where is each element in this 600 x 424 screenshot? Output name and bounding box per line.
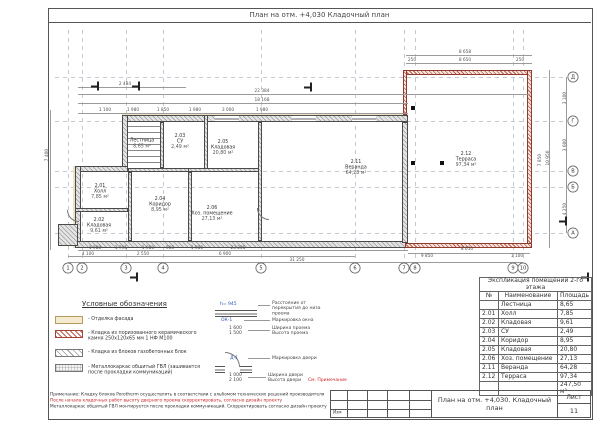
section-mark: [91, 82, 99, 91]
door-height: 2 100: [229, 377, 242, 382]
dimension-value: 1 980: [89, 245, 101, 250]
dimension-value: 2 484: [119, 81, 131, 86]
dimension-value: 4 250: [562, 203, 567, 215]
page-title: План на отм. +4,030 Кладочный план: [250, 11, 390, 19]
section-mark: [304, 83, 312, 92]
dimension-value: 4 100: [82, 251, 94, 256]
axis-bubble: 6: [349, 262, 360, 273]
dimension-value: 6 900: [219, 251, 231, 256]
legend-item-label: - Отделка фасада: [88, 316, 210, 322]
legend-title: Условные обозначения: [82, 300, 167, 308]
explication-title: Экспликация помещений 2-го этажа: [480, 278, 592, 292]
dimension-value: 2 550: [137, 251, 149, 256]
dimension-value: 1 850: [157, 107, 169, 112]
window-sill-height: h= 945: [220, 301, 237, 306]
dimension-value: 1 795: [115, 245, 127, 250]
dimension-value: 1 980: [142, 245, 154, 250]
column-mark: [411, 106, 415, 110]
window-symbol: [352, 115, 376, 122]
dimension-value: 23 205: [230, 245, 245, 250]
axis-bubble: Г: [567, 115, 578, 126]
drawing-sheet: План на отм. +4,030 Кладочный план: [0, 0, 600, 424]
dimension-value: 7 400: [44, 149, 49, 161]
axis-bubble: 2: [76, 262, 87, 273]
legend-item: - Металлокаркас обшитый ГВЛ (зашивается …: [55, 364, 240, 378]
note-line-3: Металлокаркас обшитый ГВЛ монтируется по…: [50, 404, 259, 409]
window-mark: ОК-1: [221, 317, 232, 322]
title-block-sheet: Лист 11: [557, 391, 590, 417]
axis-bubble: 7: [398, 262, 409, 273]
dimension-value: 1 980: [256, 107, 268, 112]
explication-header-row: № Наименование Площадь: [480, 292, 592, 301]
explication-row: 2.04Коридор8,95: [480, 337, 592, 346]
window-height: 1 500: [229, 330, 242, 335]
explication-table: Экспликация помещений 2-го этажа № Наиме…: [479, 277, 592, 396]
legend-item-label: - Кладка из блоков газобетонных блок: [88, 349, 210, 355]
axis-bubble: 4: [157, 262, 168, 273]
door-mark-label: Маркировка двери: [272, 355, 317, 360]
axis-bubble: А: [567, 227, 578, 238]
explication-row: 2.02Кладовая9,61: [480, 319, 592, 328]
dimension-value: 10 950: [545, 150, 550, 165]
dimension-value: 7 850: [537, 154, 542, 166]
sheet-number: 11: [558, 404, 590, 417]
dimension-value: 1 100: [511, 253, 523, 258]
explication-row: 2.05Кладовая20,80: [480, 346, 592, 355]
dimension-value: 3 600: [562, 139, 567, 151]
room-label: 2.02 Кладовая 9,61 м²: [87, 218, 111, 235]
dimension-value: 8 650: [461, 246, 473, 251]
izm-label: Изм: [333, 410, 342, 415]
axis-bubble: 1: [62, 262, 73, 273]
room-label: 2.12 Терраса 97,34 м²: [456, 152, 477, 169]
dimension-value: 250: [516, 57, 524, 62]
door-mark: Д-1: [230, 355, 238, 360]
sheet-label: Лист: [558, 391, 590, 404]
explication-rows: Лестница8,65 2.01Холл7,85 2.02Кладовая9,…: [480, 301, 592, 382]
legend-swatch: [55, 316, 83, 324]
legend-swatch: [55, 364, 83, 372]
dimension-value: 9 850: [421, 253, 433, 258]
legend-swatch: [55, 349, 83, 357]
title-block-revision-grid: Изм: [331, 391, 432, 417]
col-name: Наименование: [499, 292, 558, 301]
col-number: №: [480, 292, 499, 301]
column-mark: [411, 161, 415, 165]
legend-item: - Кладка из блоков газобетонных блок: [55, 349, 240, 357]
dimension-value: 1 980: [127, 107, 139, 112]
axis-bubble: 5: [255, 262, 266, 273]
title-block-doc-title: План на отм. +4,030. Кладочный план: [432, 391, 557, 417]
legend-item: - Кладка из поризованного керамического …: [55, 330, 240, 344]
note-line-2: После начала кладочных работ высоту двер…: [50, 398, 259, 403]
door-height-label: Высота двери: [268, 377, 301, 382]
dimension-value: 22 384: [254, 88, 269, 93]
dimension-value: 8 658: [459, 49, 471, 54]
room-label: 2.03 СУ 2,49 м²: [171, 134, 189, 151]
axis-bubble: В: [567, 165, 578, 176]
dimension-value: 3 000: [222, 107, 234, 112]
room-label: 2.01 Холл 7,85 м²: [91, 184, 109, 201]
window-mark-label: Маркировка окна: [272, 317, 313, 322]
explication-row: 2.11Веранда64,28: [480, 364, 592, 373]
sheet-top-title: План на отм. +4,030 Кладочный план: [48, 8, 591, 23]
section-mark: [130, 273, 138, 282]
room-label: 2.05 Кладовая 20,80 м²: [211, 140, 235, 157]
dimension-value: 1 980: [191, 245, 203, 250]
explication-row: 2.01Холл7,85: [480, 310, 592, 319]
dimension-value: 1 100: [99, 107, 111, 112]
dimension-value: 31 250: [289, 257, 304, 262]
window-height-label: Высота проема: [272, 330, 308, 335]
legend-swatch: [55, 330, 83, 338]
dimension-value: 900: [166, 245, 174, 250]
legend-item: - Отделка фасада: [55, 316, 240, 324]
dimension-value: 18 168: [254, 97, 269, 102]
col-area: Площадь: [557, 292, 591, 301]
axis-bubble: Д: [567, 71, 578, 82]
note-line-1: Примечание: Кладку блоков Porotherm осущ…: [50, 392, 259, 397]
room-label: 2.04 Коридор 8,95 м²: [149, 197, 171, 214]
section-mark: [559, 217, 567, 226]
axis-bubble: 10: [517, 262, 528, 273]
dimension-value: 1 980: [189, 107, 201, 112]
room-label: 2.11 Веранда 64,28 м²: [345, 160, 367, 177]
door-see-note: См. Примечание: [308, 377, 347, 382]
room-label: Лестница 8,65 м²: [130, 138, 154, 149]
window-offset-label: Расстояние от перекрытия до низа проема: [272, 300, 335, 316]
axis-bubble: Б: [567, 181, 578, 192]
section-mark: [132, 82, 140, 91]
dimension-value: 250: [408, 57, 416, 62]
legend-item-label: - Металлокаркас обшитый ГВЛ (зашивается …: [88, 364, 210, 376]
column-mark: [440, 161, 444, 165]
room-label: 2.06 Хоз. помещение 27,13 м²: [191, 206, 232, 223]
window-symbol: [215, 115, 239, 122]
explication-row: Лестница8,65: [480, 301, 592, 310]
explication-row: 2.03СУ2,49: [480, 328, 592, 337]
legend-item-label: - Кладка из поризованного керамического …: [88, 330, 210, 342]
title-block: Изм План на отм. +4,030. Кладочный план …: [330, 390, 591, 418]
dimension-value: 8 650: [459, 57, 471, 62]
dimension-value: 3 100: [562, 92, 567, 104]
axis-bubble: 8: [409, 262, 420, 273]
window-symbol: [292, 115, 316, 122]
explication-row: 2.06Хоз. помещение27,13: [480, 355, 592, 364]
